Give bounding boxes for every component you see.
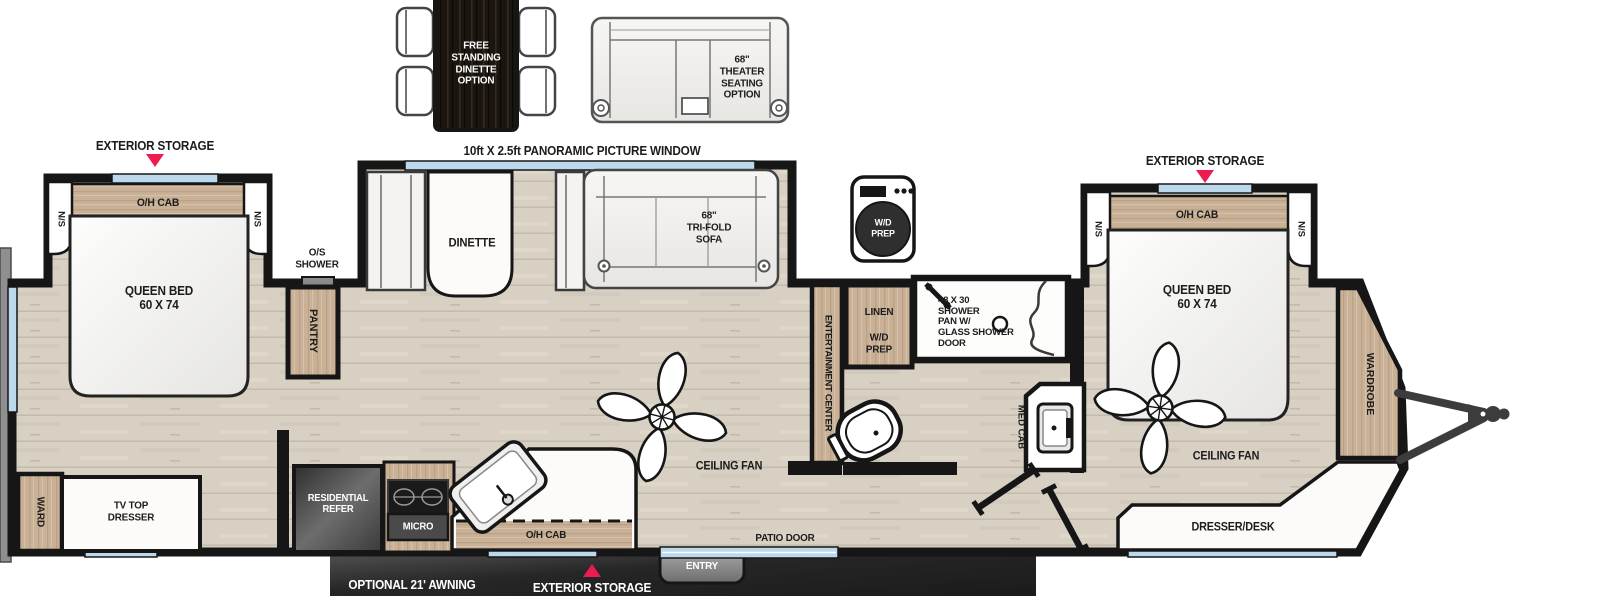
front-overhead-cabinet [1106, 196, 1290, 232]
linen-cabinet [846, 285, 912, 367]
tri-fold-sofa [584, 170, 778, 288]
front-queen-bed [1108, 230, 1288, 420]
dinette-chair [519, 67, 555, 115]
hitch [1398, 393, 1510, 460]
window-front-bedroom [1158, 184, 1252, 193]
theater-seating-option [592, 18, 788, 122]
storage-arrow-icon [583, 564, 601, 577]
front-nightstand-right [1288, 192, 1312, 266]
rear-bedroom [48, 182, 268, 396]
dinette-bench-right [556, 172, 584, 290]
front-bedroom [1086, 192, 1312, 420]
window-panoramic [405, 161, 755, 170]
shower-drain [993, 317, 1007, 331]
rear-nightstand-left [48, 182, 72, 254]
free-standing-table [435, 0, 517, 130]
floorplan-drawing [0, 0, 1600, 606]
console-tray [682, 98, 708, 114]
storage-arrow-icon [1196, 170, 1214, 183]
dinette-chair [519, 8, 555, 56]
dinette-slide [367, 170, 778, 296]
window-rear-wall [8, 287, 17, 412]
front-nightstand-left [1086, 192, 1110, 266]
dinette-chair [397, 8, 433, 56]
dinette-bench-left [367, 172, 425, 290]
window-rear-bedroom [112, 174, 218, 183]
ward-cabinet [18, 474, 62, 551]
wardrobe-cabinet [1338, 288, 1400, 458]
pantry-cabinet [288, 287, 338, 377]
refrigerator [294, 466, 382, 552]
rear-queen-bed [70, 216, 248, 396]
dinette-table [428, 172, 512, 296]
dinette-chair [397, 67, 433, 115]
free-standing-dinette-option [397, 0, 555, 130]
storage-arrow-icon [146, 154, 164, 167]
shower [914, 278, 1068, 360]
microwave [388, 514, 448, 540]
rv-floorplan: EXTERIOR STORAGE 10ft X 2.5ft PANORAMIC … [0, 0, 1600, 606]
med-cab-vanity [1026, 384, 1084, 470]
washer-dryer-icon [852, 177, 914, 261]
tv-top-dresser [62, 477, 200, 551]
